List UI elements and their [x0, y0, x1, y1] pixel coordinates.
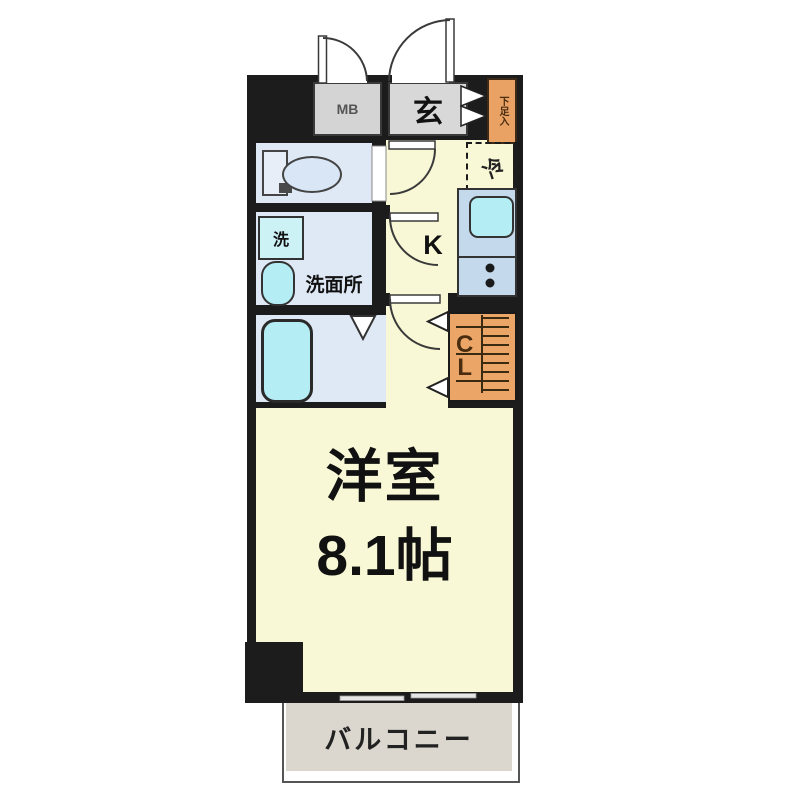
- wall-stub: [372, 205, 390, 219]
- kitchen-sink-icon: [469, 196, 514, 238]
- refrigerator-space: 冷: [466, 142, 520, 191]
- meter-box-label: MB: [337, 101, 359, 117]
- hall-floor-lower: [386, 310, 448, 408]
- shoe-storage-label: 下足入: [497, 96, 507, 126]
- wall-corner-notch: [245, 642, 303, 703]
- counter-divider: [457, 256, 517, 258]
- room-label: 洋室 8.1帖: [256, 438, 513, 595]
- entrance-label: 玄: [413, 87, 443, 131]
- washroom-label: 洗面所: [290, 270, 378, 297]
- meter-box: MB: [313, 82, 382, 136]
- balcony: バルコニー: [282, 703, 520, 783]
- closet: C L: [448, 312, 517, 402]
- kitchen-label: K: [413, 230, 453, 261]
- balcony-floor: バルコニー: [286, 703, 512, 771]
- bathtub-icon: [261, 319, 313, 403]
- toilet-bowl-icon: [282, 156, 342, 193]
- closet-label: C L: [456, 334, 473, 380]
- balcony-label: バルコニー: [324, 718, 473, 757]
- refrigerator-label: 冷: [476, 149, 510, 184]
- washing-machine-pan: 洗: [258, 216, 304, 260]
- room-name: 洋室: [256, 438, 513, 517]
- washer-label: 洗: [273, 226, 289, 250]
- entrance-door-leaf: [446, 19, 454, 82]
- entrance-genkan: 玄: [388, 82, 468, 136]
- shoe-storage: 下足入: [487, 78, 517, 144]
- room-size: 8.1帖: [256, 517, 513, 596]
- floorplan: MB 玄 下足入 冷 K 洗 洗面所 C L 洋室 8.1帖 バルコニー: [0, 0, 800, 800]
- entrance-door-arc: [389, 20, 450, 81]
